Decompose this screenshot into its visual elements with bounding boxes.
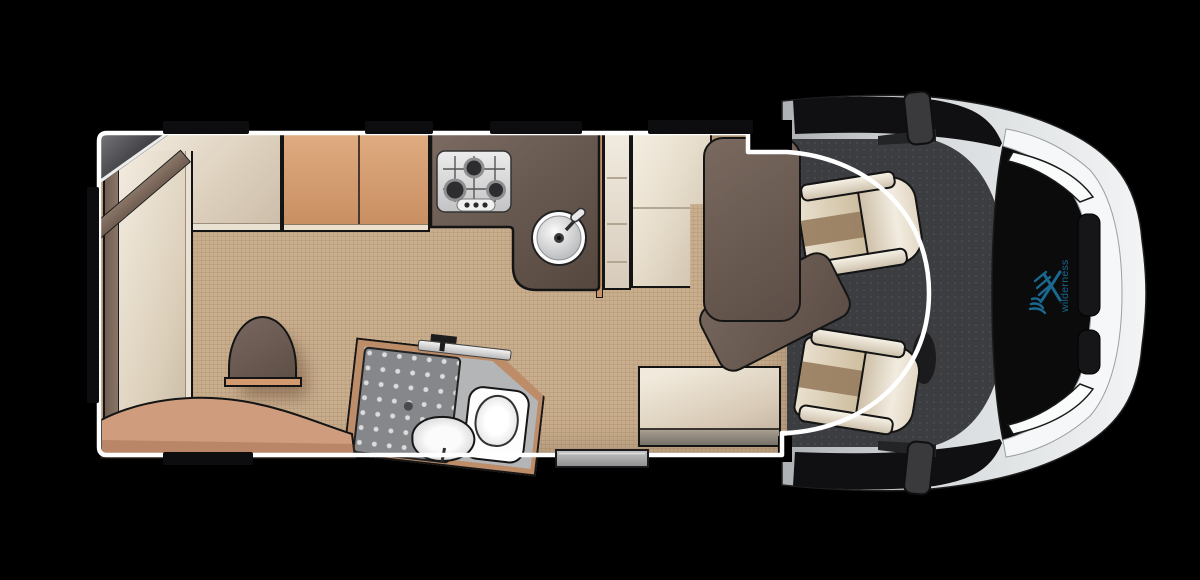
seat-backrest xyxy=(105,151,119,418)
kitchen-counter-block xyxy=(428,130,602,294)
shower-drain xyxy=(403,401,413,411)
logo-text: wilderness xyxy=(1059,259,1071,313)
grille-slot-bottom xyxy=(1078,330,1100,374)
toilet xyxy=(461,385,531,466)
burner xyxy=(465,159,483,177)
hob-knob xyxy=(464,202,469,207)
shelf xyxy=(607,261,627,263)
gas-hob xyxy=(437,151,511,212)
kitchen-cabinets xyxy=(282,133,430,232)
pedestal-table-base xyxy=(224,377,302,387)
dinette-table xyxy=(703,137,801,322)
cabinet-front-edge xyxy=(284,224,428,230)
burner xyxy=(445,180,465,200)
motorhome-floorplan: wilderness xyxy=(0,0,1200,580)
hob-knob xyxy=(482,202,487,207)
door-handle-stem xyxy=(439,342,445,352)
shelf xyxy=(607,223,627,225)
bathroom xyxy=(343,337,549,476)
shelf xyxy=(607,177,627,179)
basin-tap xyxy=(441,448,447,462)
bench-seat xyxy=(638,366,781,447)
burner xyxy=(488,182,505,199)
grille-slot-top xyxy=(1078,214,1100,316)
cabinet-door-seam xyxy=(358,135,360,230)
shelf-unit xyxy=(603,133,631,290)
toilet-bowl xyxy=(472,393,522,450)
bench-base xyxy=(640,428,779,445)
wardrobe-seam xyxy=(633,207,692,209)
hob-knob xyxy=(473,202,478,207)
driver-seat xyxy=(791,326,921,439)
seat-front-edge xyxy=(185,151,191,418)
